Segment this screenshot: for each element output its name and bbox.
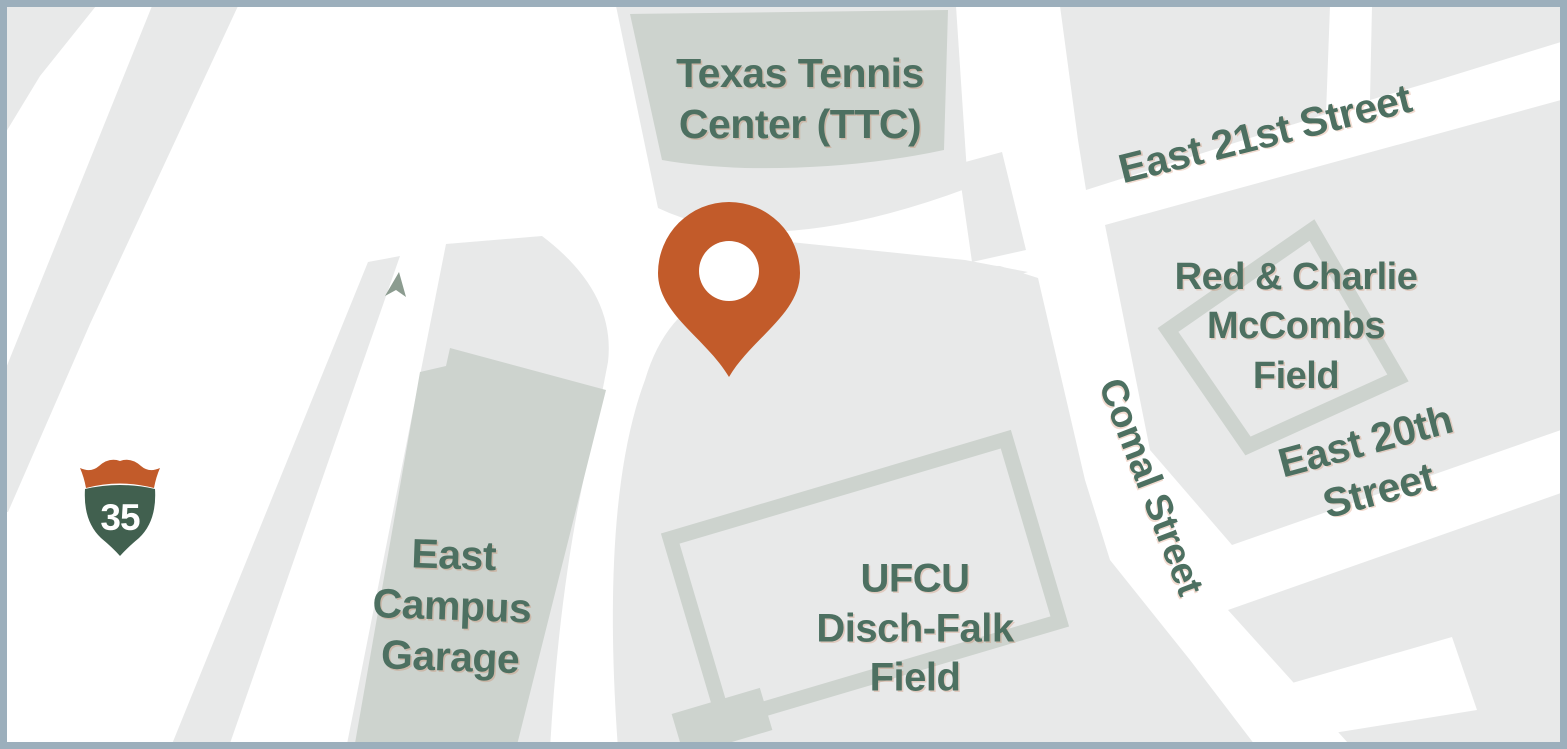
map-canvas: 35 xyxy=(0,0,1567,749)
campus-map: 35 Texas Tennis Center (TTC) East 21st S… xyxy=(0,0,1567,749)
location-pin-hole xyxy=(699,241,759,301)
shield-route-number: 35 xyxy=(100,497,140,538)
texas-tennis-center-building xyxy=(630,10,948,168)
